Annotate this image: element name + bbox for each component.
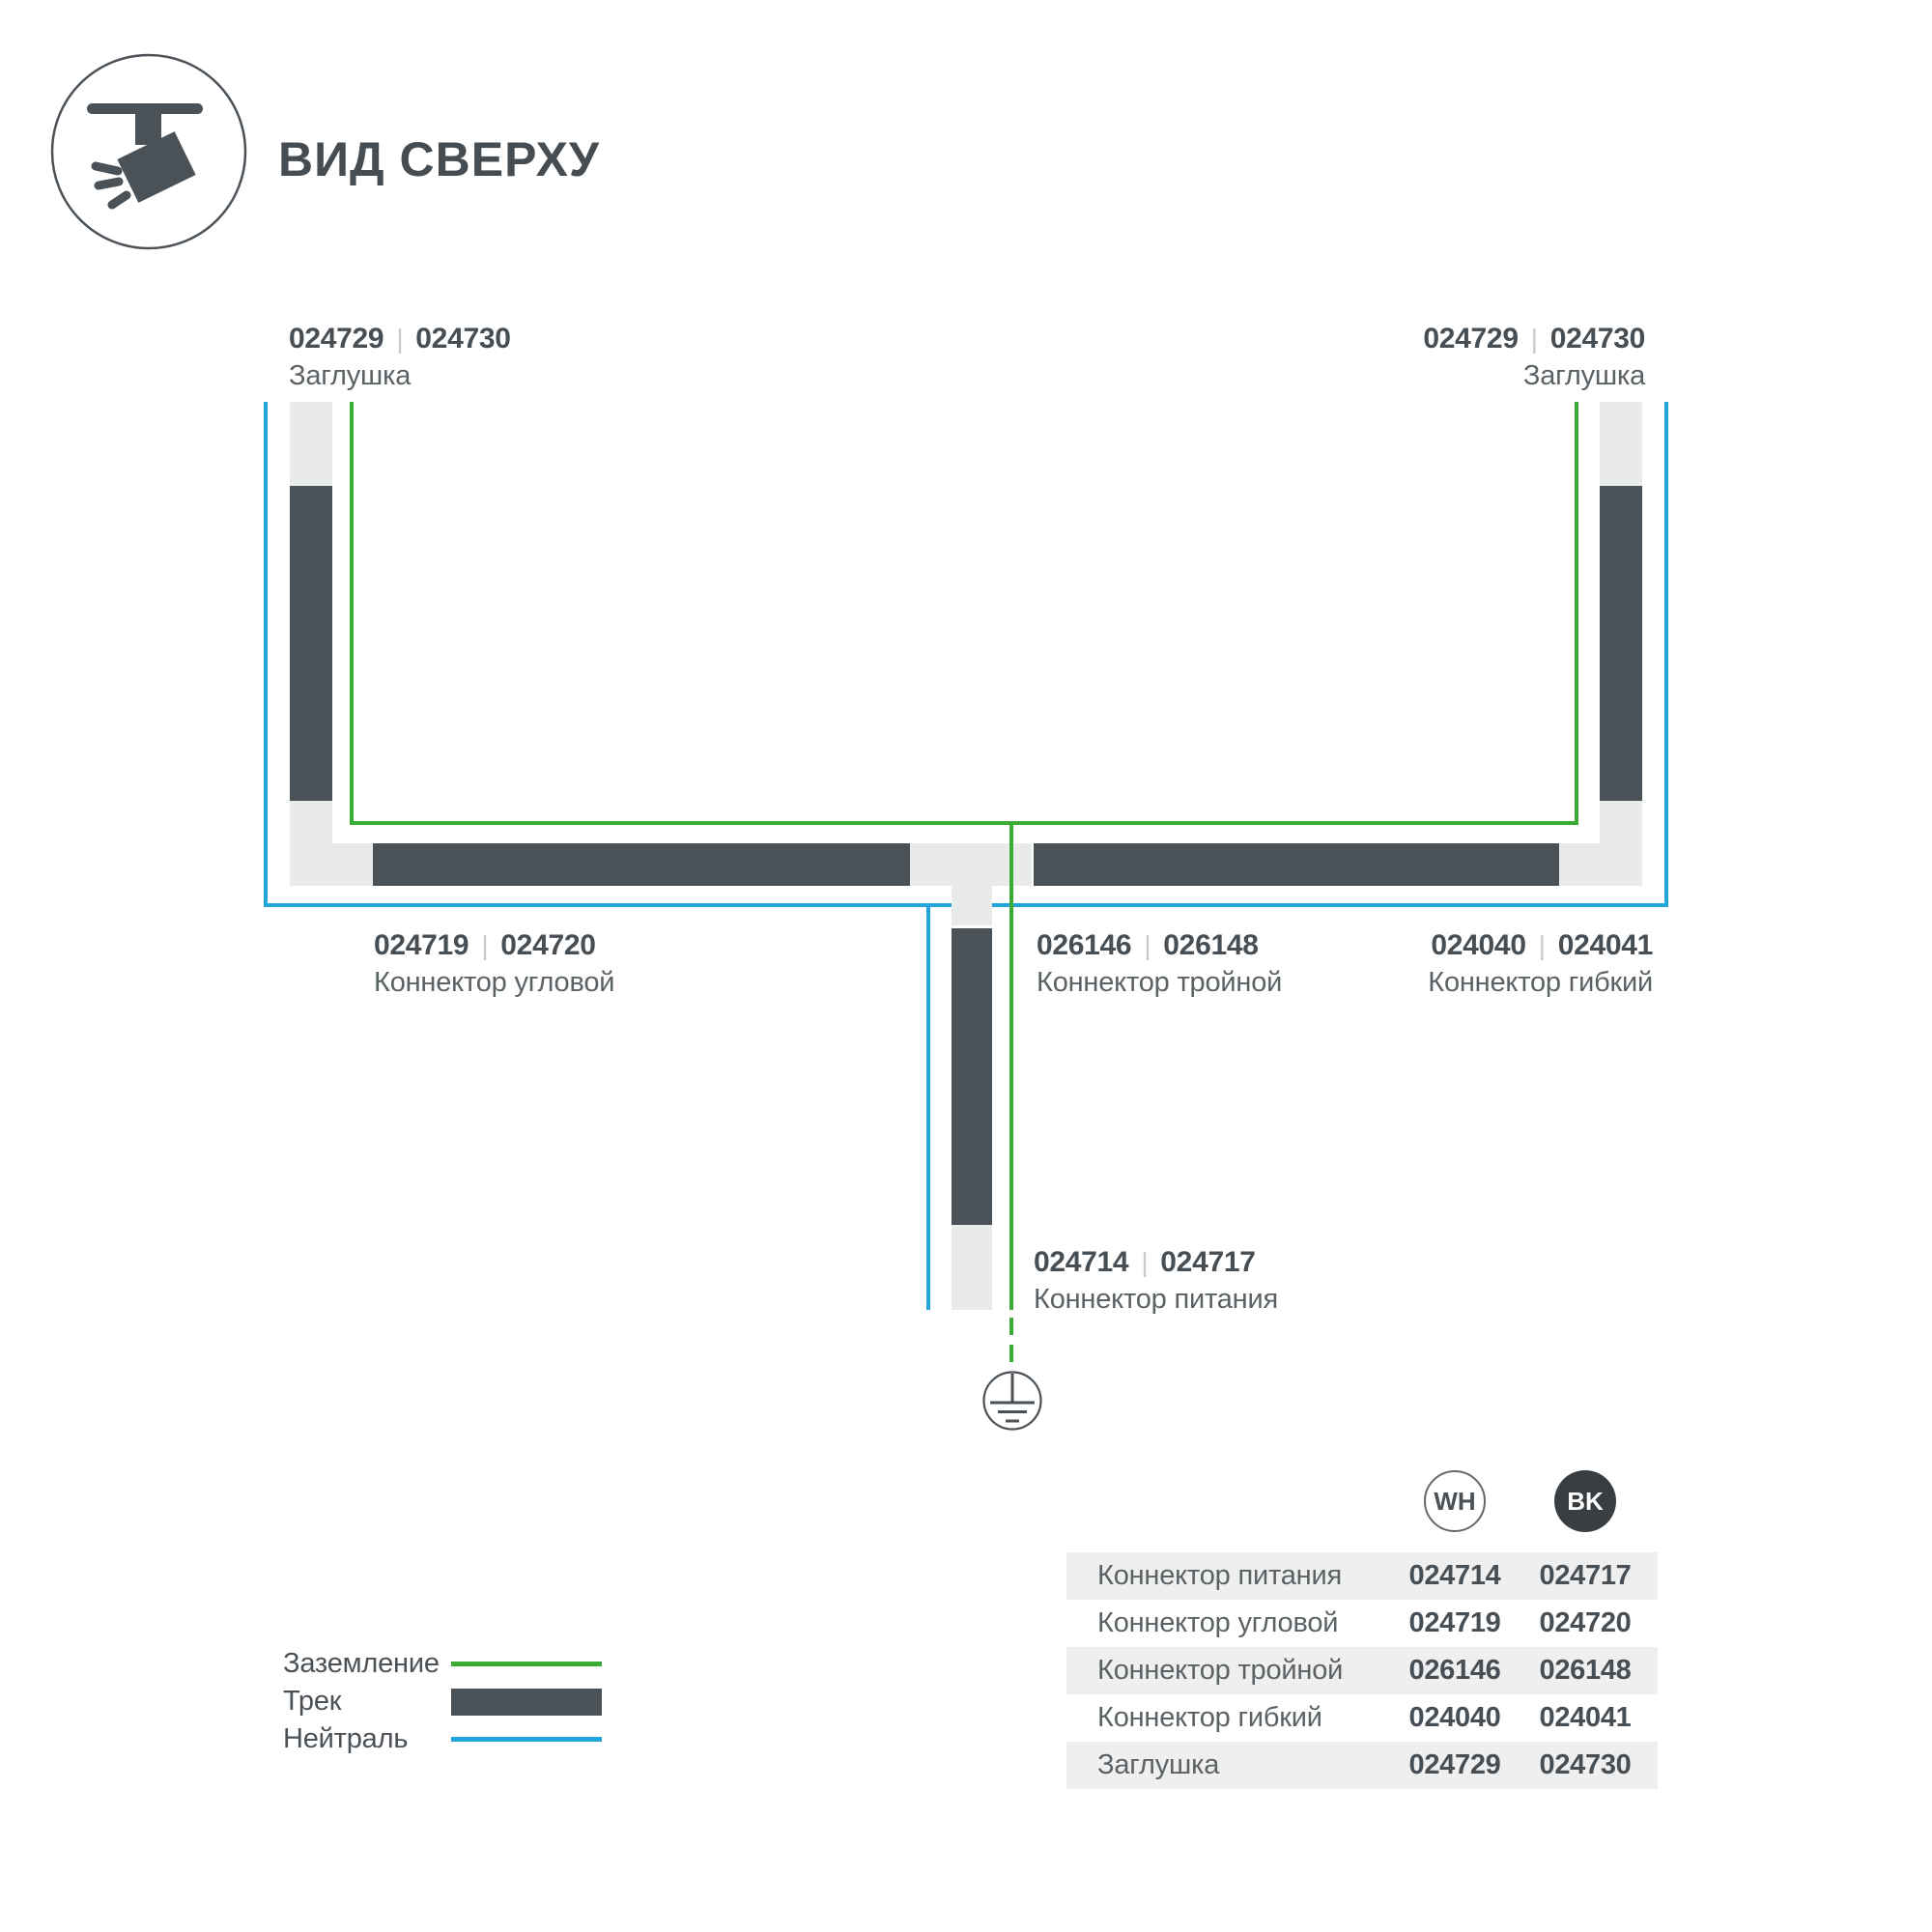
neutral-line-horizontal-right: [992, 903, 1668, 907]
label-endcap-right: 024729|024730 Заглушка: [1423, 323, 1645, 391]
ground-line-swatch: [451, 1662, 602, 1666]
part-codes: 026146|026148: [1037, 929, 1282, 962]
label-triple-connector: 026146|026148 Коннектор тройной: [1037, 929, 1282, 998]
part-codes: 024714|024717: [1034, 1246, 1278, 1279]
track-segment-center: [952, 928, 992, 1225]
track-segment-bottom-right: [1034, 843, 1559, 886]
row-code-bk: 024730: [1523, 1742, 1647, 1789]
legend: Заземление Трек Нейтраль: [283, 1645, 611, 1758]
part-codes: 024719|024720: [374, 929, 614, 962]
neutral-line-right-vertical: [1664, 402, 1668, 907]
table-row: Коннектор тройной 026146 026148: [1066, 1647, 1658, 1694]
neutral-line-center-drop: [926, 903, 930, 1310]
part-name: Заглушка: [289, 360, 511, 391]
legend-label: Нейтраль: [283, 1723, 408, 1754]
color-badge-black: BK: [1554, 1470, 1616, 1532]
ground-line-left-vertical: [350, 402, 354, 823]
row-code-bk: 024720: [1523, 1600, 1647, 1647]
part-name: Коннектор угловой: [374, 967, 614, 998]
code-separator: |: [1128, 1247, 1160, 1277]
part-codes: 024040|024041: [1428, 929, 1653, 962]
page-title: ВИД СВЕРХУ: [278, 131, 600, 187]
code-separator: |: [1526, 930, 1558, 960]
row-part-name: Коннектор питания: [1097, 1552, 1342, 1600]
track-spotlight-icon: [47, 50, 250, 253]
track-segment-bottom-left: [373, 843, 910, 886]
part-codes: 024729|024730: [289, 323, 511, 355]
table-row: Коннектор гибкий 024040 024041: [1066, 1694, 1658, 1742]
label-corner-connector: 024719|024720 Коннектор угловой: [374, 929, 614, 998]
track-segment-left: [290, 486, 332, 801]
label-power-connector: 024714|024717 Коннектор питания: [1034, 1246, 1278, 1315]
legend-item-ground: Заземление: [283, 1645, 611, 1683]
part-name: Коннектор тройной: [1037, 967, 1282, 998]
row-code-wh: 024719: [1393, 1600, 1517, 1647]
row-part-name: Коннектор гибкий: [1097, 1694, 1322, 1742]
endcap-left: [290, 402, 332, 486]
track-bar-swatch: [451, 1689, 602, 1716]
flex-connector-vertical: [1600, 801, 1642, 886]
triple-connector-body: [910, 843, 1032, 886]
row-code-wh: 024729: [1393, 1742, 1517, 1789]
code-separator: |: [1519, 324, 1550, 354]
parts-table-rows: Коннектор питания 024714 024717 Коннекто…: [1066, 1552, 1658, 1789]
code-separator: |: [384, 324, 415, 354]
endcap-right: [1600, 402, 1642, 486]
label-flex-connector: 024040|024041 Коннектор гибкий: [1428, 929, 1653, 998]
part-name: Коннектор гибкий: [1428, 967, 1653, 998]
color-badge-white: WH: [1424, 1470, 1486, 1532]
neutral-line-horizontal-left: [264, 903, 952, 907]
row-code-bk: 024717: [1523, 1552, 1647, 1600]
neutral-line-left-vertical: [264, 402, 268, 905]
row-code-bk: 026148: [1523, 1647, 1647, 1694]
earth-ground-icon: [979, 1367, 1046, 1435]
legend-item-track: Трек: [283, 1683, 611, 1720]
ground-line-center-drop: [1009, 821, 1013, 1310]
ground-line-dashed-tail: [1009, 1318, 1013, 1362]
ground-line-horizontal: [350, 821, 1578, 825]
part-codes: 024729|024730: [1423, 323, 1645, 355]
part-name: Коннектор питания: [1034, 1284, 1278, 1315]
ground-line-right-vertical: [1575, 402, 1578, 821]
legend-label: Трек: [283, 1686, 341, 1717]
code-separator: |: [1131, 930, 1163, 960]
row-part-name: Коннектор тройной: [1097, 1647, 1343, 1694]
table-row: Заглушка 024729 024730: [1066, 1742, 1658, 1789]
page: ВИД СВЕРХУ: [0, 0, 1932, 1932]
row-code-wh: 026146: [1393, 1647, 1517, 1694]
row-code-bk: 024041: [1523, 1694, 1647, 1742]
table-row: Коннектор угловой 024719 024720: [1066, 1600, 1658, 1647]
label-endcap-left: 024729|024730 Заглушка: [289, 323, 511, 391]
row-part-name: Заглушка: [1097, 1742, 1219, 1789]
part-name: Заглушка: [1423, 360, 1645, 391]
row-code-wh: 024714: [1393, 1552, 1517, 1600]
corner-connector-left-horizontal: [290, 843, 373, 886]
table-row: Коннектор питания 024714 024717: [1066, 1552, 1658, 1600]
row-code-wh: 024040: [1393, 1694, 1517, 1742]
neutral-line-swatch: [451, 1737, 602, 1742]
power-connector-body: [952, 1225, 992, 1310]
row-part-name: Коннектор угловой: [1097, 1600, 1338, 1647]
code-separator: |: [469, 930, 500, 960]
triple-connector-stem: [952, 886, 992, 925]
legend-label: Заземление: [283, 1648, 440, 1679]
track-segment-right: [1600, 486, 1642, 801]
legend-item-neutral: Нейтраль: [283, 1720, 611, 1758]
